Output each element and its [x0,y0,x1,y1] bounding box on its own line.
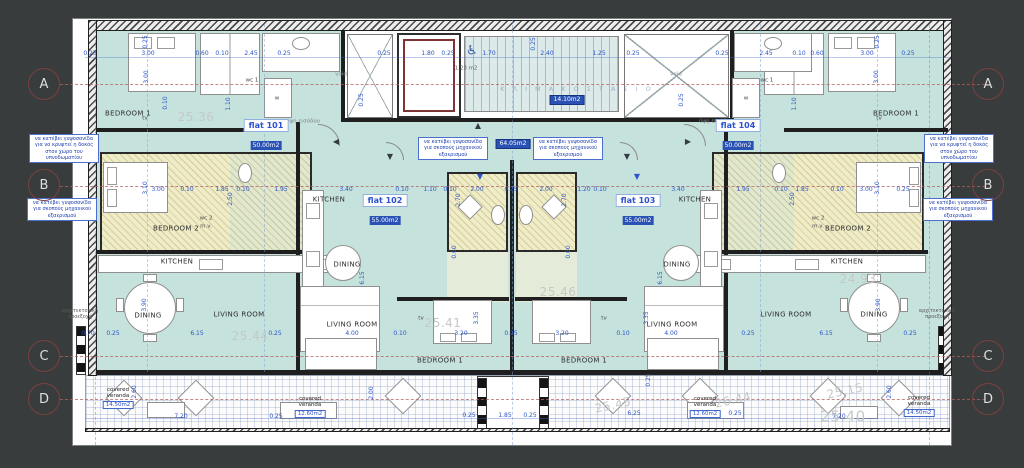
sink-104 [764,37,782,50]
flat-name-label: flat 103 [616,194,661,207]
area-badge: 64.05m2 [496,139,531,149]
grid-bubble-B: B [28,169,60,201]
dim-label: 0.25 [504,187,517,193]
grid-axis-C [60,356,985,357]
dim-label: 0.25 [523,413,536,419]
dim-label-vertical: 3.35 [644,311,650,324]
flat-name-label: flat 101 [244,119,289,132]
underlay-elevation: 25.41 [425,317,462,329]
room-label: BEDROOM 2 [153,226,199,233]
room-label: KITCHEN [313,197,345,204]
kitchen-counter-102 [302,190,324,290]
flat-area-badge: 50.00m2 [251,141,282,150]
chair [116,298,124,312]
underlay-elevation: 24.93 [840,273,877,285]
dim-label: 0.60 [810,51,823,57]
room-label: DINING [860,312,887,319]
small-label: wc 2 [200,216,213,222]
dim-label-vertical: 2.50 [790,192,796,205]
underlay-elevation: 25.44 [232,330,269,342]
flat-name-label: flat 104 [716,119,761,132]
wall-party-103-104 [724,122,728,372]
dim-label: 0.25 [728,411,741,417]
dim-label-vertical: 3.10 [875,181,881,194]
dim-label: 0.10 [616,331,629,337]
wall-core-bottom [341,118,734,122]
grid-axis-center [512,20,513,445]
dim-label-vertical: 3.10 [143,181,149,194]
dim-label-vertical: 0.25 [875,35,881,48]
direction-arrow-icon: ▼ [387,153,393,161]
floorplan-canvas[interactable]: BEDROOM 1BEDROOM 1BEDROOM 1BEDROOM 1BEDR… [0,0,1024,468]
red-axis-right [929,20,930,445]
flat-tag: flat 10355.00m2 [616,194,661,226]
veranda-area-badge: 12.60m2 [295,410,326,418]
grid-bubble-D: D [972,383,1004,415]
dim-label-vertical: 0.10 [163,96,169,109]
dim-label-vertical: 2.50 [228,192,234,205]
room-label: KITCHEN [679,197,711,204]
veranda-label-line: covered [299,396,321,402]
wardrobe-101 [200,33,260,95]
small-label: void [670,72,682,78]
direction-arrow-icon: ◀ [333,138,339,146]
dim-label: 0.25 [504,331,517,337]
dim-label: 3.00 [860,51,873,57]
flat-tag: flat 10150.00m2 [244,119,289,151]
small-label: m.v. [200,224,212,230]
dim-label-vertical: 6.15 [360,271,366,284]
dining-table-101 [124,282,176,334]
wall-kitchen-left [96,250,312,254]
veranda-label-line: veranda [908,401,931,407]
small-label: όψη εισόδου [286,119,320,125]
staircase-watermark: Κ Λ Ι Μ Α Κ Ο Σ Τ Α Σ Ι Ο [500,86,654,93]
dim-label-vertical: 2.00 [369,386,375,399]
dim-label: 3.20 [454,331,467,337]
dim-label: 1.10 [423,187,436,193]
dim-label: 0.25 [441,51,454,57]
grid-bubble-D: D [28,383,60,415]
small-label: 1.23 m2 [455,66,478,72]
dim-label: 0.25 [106,331,119,337]
toilet-103 [519,205,533,225]
dim-label: 0.10 [443,187,456,193]
grid-bubble-B: B [972,169,1004,201]
dim-label: 0.10 [395,187,408,193]
dim-chain-top [85,57,950,58]
note-box: να κατέβει γυψοσανίδα για σκοπούς μηχανι… [923,198,993,221]
grid-axis-B [60,186,985,187]
dim-label: 0.25 [462,413,475,419]
grid-bubble-A: A [28,68,60,100]
small-label: tv [418,316,423,322]
flat-area-badge: 50.00m2 [723,141,754,150]
wheelchair-icon: ♿ [466,45,478,58]
dim-label: 7.20 [174,414,187,420]
flat-area-badge: 55.00m2 [623,216,654,225]
grid-axis-D [60,399,985,400]
room-label: DINING [663,262,690,269]
dim-label-vertical: 0.60 [566,245,572,258]
void-left [347,34,393,118]
veranda-label-line: veranda [299,402,322,408]
dim-label: 0.25 [268,331,281,337]
dim-label: 0.25 [277,51,290,57]
small-label: w [275,96,280,102]
room-label: KITCHEN [831,259,863,266]
dim-label: 2.45 [244,51,257,57]
dim-label: 4.00 [345,331,358,337]
direction-arrow-icon: ▲ [475,122,481,130]
area-badge: 14.10m2 [550,95,585,105]
chair [840,298,848,312]
dim-label-vertical: 1.10 [226,97,232,110]
dim-label: 0.25 [896,187,909,193]
arch-projection-note: αρχιτεκτονική προεξοχή [57,308,103,320]
grid-bubble-A: A [972,68,1004,100]
direction-arrow-icon: ▶ [685,138,691,146]
veranda-label-line: covered [107,387,129,393]
veranda-tag: coveredveranda12.60m2 [295,396,326,418]
dim-label: 1.25 [592,51,605,57]
veranda-area-badge: 14.50m2 [904,409,935,417]
dim-label: 3.00 [859,187,872,193]
toilet-102 [491,205,505,225]
room-label: DINING [134,313,161,320]
toilet-wc2-101 [238,163,252,183]
underlay-elevation: 25.36 [178,111,215,123]
bed-alcove-flat102 [447,252,508,302]
veranda-area-badge: 12.60m2 [690,410,721,418]
veranda-label-line: veranda [107,393,130,399]
dim-label: 0.10 [774,187,787,193]
note-box: να κατέβει γυψοσανίδα για σκοπούς μηχανι… [27,198,97,221]
dim-label: 2.45 [759,51,772,57]
small-label: wc 1 [761,78,774,84]
flat-tag: flat 10450.00m2 [716,119,761,151]
dim-label: 6.15 [190,331,203,337]
dim-label: 1.20 [577,187,590,193]
dim-label: 2.00 [470,187,483,193]
note-box: να κατέβει γυψοσανίδα για να κρυφτεί η δ… [29,134,99,163]
dim-label-vertical: 3.90 [142,298,148,311]
underlay-elevation: 25.46 [540,286,577,298]
dim-label: 3.40 [671,187,684,193]
veranda-edge [85,428,950,432]
arch-projection-note: αρχιτεκτονική προεξοχή [914,308,960,320]
dim-label: 0.70 [81,331,94,337]
chair [867,334,881,342]
dim-label: 3.00 [141,51,154,57]
veranda-tag: coveredveranda14.50m2 [103,387,134,409]
chair [176,298,184,312]
dim-label: 3.00 [151,187,164,193]
dim-label: 6.25 [627,411,640,417]
dim-label: 6.15 [819,331,832,337]
dim-label-vertical: 3.35 [474,311,480,324]
dim-label: 0.10 [180,187,193,193]
small-label: m.v. [812,224,824,230]
room-label: KITCHEN [161,259,193,266]
room-label: DINING [333,262,360,269]
wall-kitchen-right [712,250,928,254]
wall-room-bottom [96,370,944,375]
dim-label-vertical: 0.25 [531,37,537,50]
dim-label: 0.60 [195,51,208,57]
red-axis-left [95,20,96,445]
dim-label-vertical: 0.60 [452,245,458,258]
small-label: tv [601,316,606,322]
grid-axis-v [760,24,761,372]
dim-label: 0.10 [236,187,249,193]
dim-label-vertical: 6.15 [658,271,664,284]
porch-columns-left [477,378,487,430]
room-label: BEDROOM 1 [561,358,607,365]
dim-label: 1.70 [482,51,495,57]
dim-label: 0.10 [215,51,228,57]
sink-101 [292,37,310,50]
dim-label: 2.40 [540,51,553,57]
dim-label: 3.20 [555,331,568,337]
flat-area-badge: 55.00m2 [370,216,401,225]
room-label: LIVING ROOM [214,312,265,319]
flat-tag: flat 10255.00m2 [363,194,408,226]
veranda-label-line: covered [694,396,716,402]
sofa-103 [647,338,719,370]
dim-label: 2.00 [539,187,552,193]
room-label: BEDROOM 1 [417,358,463,365]
small-label: tv [876,116,881,122]
elevator-shaft [397,33,461,118]
dim-label-vertical: 0.25 [646,373,652,386]
dim-label: 0.25 [715,51,728,57]
dim-label: 1.85 [498,413,511,419]
dim-label-vertical: 3.90 [876,298,882,311]
kitchen-counter-103 [700,190,722,290]
veranda-area-badge: 14.50m2 [103,401,134,409]
sofa-102 [305,338,377,370]
small-label: wc 2 [812,216,825,222]
chair [900,298,908,312]
dim-label: 0.25 [901,51,914,57]
chair [143,274,157,282]
dim-label: 0.25 [626,51,639,57]
dim-label-vertical: 2.70 [456,193,462,206]
grid-bubble-C: C [972,340,1004,372]
veranda-tag: coveredveranda14.50m2 [904,395,935,417]
dim-label-vertical: 2.70 [562,193,568,206]
wall-top [88,20,952,31]
grid-bubble-C: C [28,340,60,372]
dim-label: 4.00 [664,331,677,337]
wall-bedroom1-right [784,128,948,132]
bed-flat103 [532,300,591,344]
note-box: να κατέβει γυψοσανίδα για να κρυφτεί η δ… [924,134,994,163]
veranda-label-line: veranda [694,402,717,408]
grid-axis-v [264,24,265,372]
small-label: tv [142,116,147,122]
dim-label: 1.95 [736,187,749,193]
dim-label: 3.40 [339,187,352,193]
dim-label: 1.80 [421,51,434,57]
room-label: LIVING ROOM [761,312,812,319]
dim-label-vertical: 1.10 [792,97,798,110]
direction-arrow-icon: ▼ [477,173,483,181]
dim-label-vertical: 0.25 [143,35,149,48]
dim-label: 1.95 [274,187,287,193]
veranda-tag: coveredveranda12.60m2 [690,396,721,418]
dim-label-vertical: 3.00 [144,70,150,83]
underlay-elevation: 25.40 [820,410,865,425]
small-label: void [335,72,347,78]
dim-label: 1.85 [795,187,808,193]
dim-label: 0.10 [792,51,805,57]
porch-columns-right [539,378,549,430]
room-label: LIVING ROOM [327,322,378,329]
dim-label: 0.10 [830,187,843,193]
small-label: wc 1 [246,78,259,84]
note-box: να κατέβει γυψοσανίδα για σκοπούς μηχανι… [533,137,603,160]
flat-name-label: flat 102 [363,194,408,207]
dim-label: 0.10 [593,187,606,193]
dim-label-vertical: 0.25 [679,93,685,106]
room-label: BEDROOM 2 [825,226,871,233]
dim-label: 0.25 [83,51,96,57]
dim-label-vertical: 3.00 [874,70,880,83]
chair [143,334,157,342]
dim-label: 0.10 [393,331,406,337]
dim-label: 0.25 [903,331,916,337]
dim-label: 0.25 [741,331,754,337]
dim-label-vertical: 2.60 [887,385,893,398]
toilet-wc2-104 [772,163,786,183]
small-label: w [744,96,749,102]
note-box: να κατέβει γυψοσανίδα για σκοπούς μηχανι… [418,137,488,160]
dining-table-104 [848,282,900,334]
dim-label-vertical: 0.25 [359,93,365,106]
dim-label: 0.25 [377,51,390,57]
staircase [464,36,619,112]
dim-label: 0.25 [269,414,282,420]
room-label: LIVING ROOM [647,322,698,329]
direction-arrow-icon: ▼ [624,153,630,161]
veranda-label-line: covered [908,395,930,401]
wall-bedroom1-left [96,128,260,132]
direction-arrow-icon: ▼ [634,173,640,181]
